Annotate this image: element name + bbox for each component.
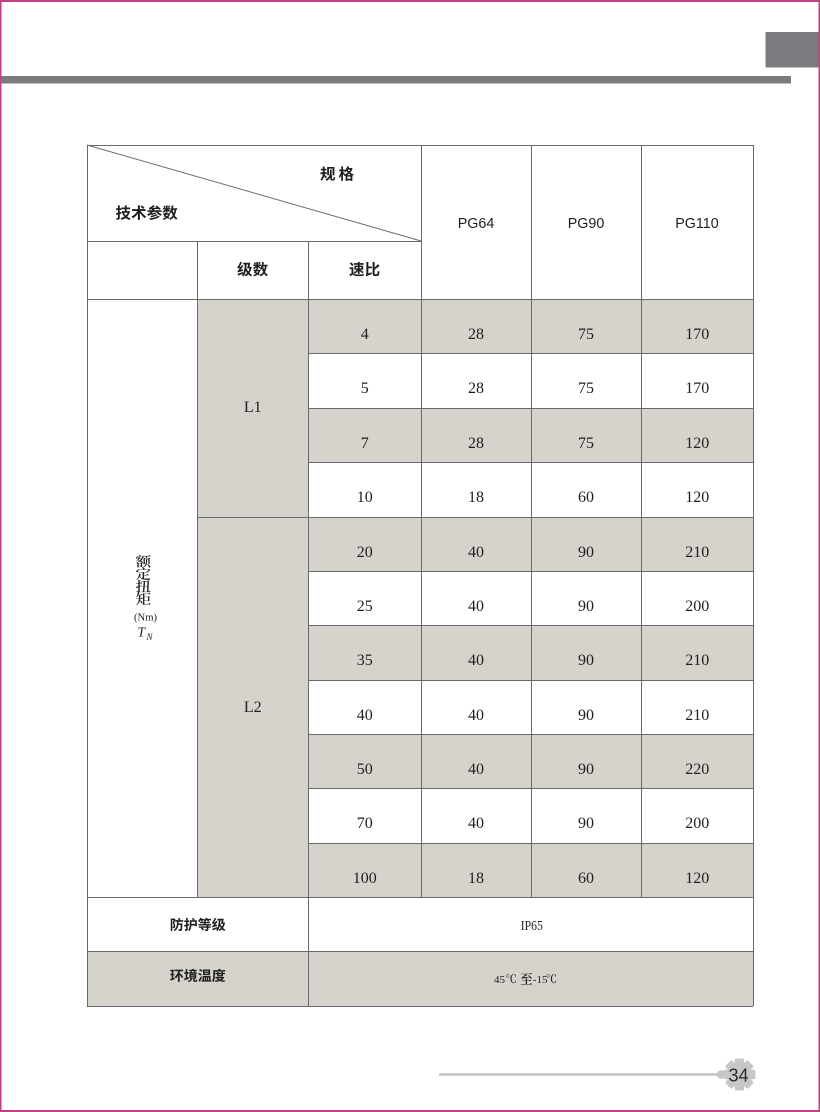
- svg-text:120: 120: [685, 435, 709, 452]
- svg-text:200: 200: [685, 815, 709, 832]
- svg-text:4: 4: [361, 326, 369, 343]
- svg-text:18: 18: [468, 489, 484, 506]
- svg-text:7: 7: [361, 435, 369, 452]
- svg-text:40: 40: [468, 707, 484, 724]
- svg-text:90: 90: [578, 815, 594, 832]
- svg-text:(Nm): (Nm): [134, 613, 158, 624]
- svg-text:N: N: [146, 632, 154, 642]
- svg-text:PG90: PG90: [568, 216, 605, 232]
- svg-text:210: 210: [685, 544, 709, 561]
- svg-text:100: 100: [353, 870, 377, 887]
- svg-text:25: 25: [357, 598, 373, 615]
- svg-text:18: 18: [468, 870, 484, 887]
- svg-text:40: 40: [468, 815, 484, 832]
- svg-text:75: 75: [578, 435, 594, 452]
- svg-text:60: 60: [578, 489, 594, 506]
- svg-text:120: 120: [685, 489, 709, 506]
- svg-text:90: 90: [578, 761, 594, 778]
- svg-text:IP65: IP65: [521, 919, 543, 934]
- svg-text:170: 170: [685, 380, 709, 397]
- svg-text:90: 90: [578, 707, 594, 724]
- svg-text:28: 28: [468, 380, 484, 397]
- svg-text:40: 40: [468, 761, 484, 778]
- svg-text:10: 10: [357, 489, 373, 506]
- svg-text:-15: -15: [533, 974, 548, 986]
- svg-text:75: 75: [578, 380, 594, 397]
- svg-text:90: 90: [578, 652, 594, 669]
- svg-text:45: 45: [494, 974, 506, 986]
- svg-text:L2: L2: [244, 699, 262, 716]
- svg-text:40: 40: [357, 707, 373, 724]
- svg-text:28: 28: [468, 435, 484, 452]
- svg-text:220: 220: [685, 761, 709, 778]
- svg-text:200: 200: [685, 598, 709, 615]
- svg-text:120: 120: [685, 870, 709, 887]
- svg-text:L1: L1: [244, 399, 262, 416]
- svg-text:5: 5: [361, 380, 369, 397]
- svg-text:50: 50: [357, 761, 373, 778]
- svg-text:35: 35: [357, 652, 373, 669]
- svg-text:40: 40: [468, 652, 484, 669]
- svg-text:20: 20: [357, 544, 373, 561]
- svg-text:210: 210: [685, 652, 709, 669]
- svg-text:PG64: PG64: [458, 216, 495, 232]
- svg-text:170: 170: [685, 326, 709, 343]
- svg-text:28: 28: [468, 326, 484, 343]
- svg-text:90: 90: [578, 544, 594, 561]
- svg-text:40: 40: [468, 598, 484, 615]
- svg-text:PG110: PG110: [675, 216, 718, 232]
- svg-text:34: 34: [728, 1066, 748, 1086]
- svg-text:60: 60: [578, 870, 594, 887]
- svg-text:210: 210: [685, 707, 709, 724]
- svg-text:75: 75: [578, 326, 594, 343]
- svg-text:40: 40: [468, 544, 484, 561]
- svg-text:70: 70: [357, 815, 373, 832]
- svg-text:90: 90: [578, 598, 594, 615]
